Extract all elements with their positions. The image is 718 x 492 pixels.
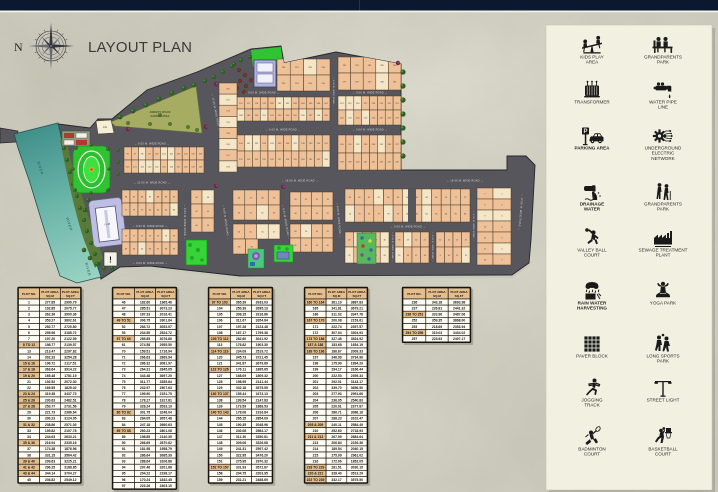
svg-text:3053.97: 3053.97 — [160, 325, 172, 329]
svg-text:288.23: 288.23 — [331, 417, 341, 421]
svg-text:363.64: 363.64 — [45, 368, 55, 372]
svg-text:236.82: 236.82 — [45, 478, 55, 482]
svg-text:30: 30 — [27, 417, 31, 421]
svg-text:3: 3 — [28, 313, 30, 317]
svg-text:174.38: 174.38 — [45, 447, 55, 451]
svg-text:3041.92: 3041.92 — [256, 337, 268, 341]
svg-text:2507.63: 2507.63 — [160, 386, 172, 390]
svg-text:128: 128 — [217, 380, 223, 384]
svg-text:220.91: 220.91 — [331, 404, 341, 408]
svg-text:307.04: 307.04 — [331, 331, 341, 335]
svg-text:2139.57: 2139.57 — [64, 343, 76, 347]
svg-text:P: P — [583, 129, 587, 135]
svg-text:176.82: 176.82 — [236, 343, 246, 347]
svg-text:2203.95: 2203.95 — [256, 472, 268, 476]
svg-text:47: 47 — [122, 306, 126, 310]
svg-text:1809.32: 1809.32 — [256, 374, 268, 378]
svg-text:178.17: 178.17 — [140, 398, 150, 402]
svg-text:3476.20: 3476.20 — [256, 453, 268, 457]
svg-text:3316.86: 3316.86 — [256, 313, 268, 317]
svg-text:1876.96: 1876.96 — [64, 447, 76, 451]
svg-text:COURT: COURT — [584, 253, 600, 258]
svg-text:197.28: 197.28 — [236, 325, 246, 329]
svg-text:222.53: 222.53 — [331, 374, 341, 378]
svg-text:160 TO 164: 160 TO 164 — [307, 300, 325, 304]
svg-text:178.08: 178.08 — [236, 411, 246, 415]
svg-text:2718.93: 2718.93 — [351, 429, 363, 433]
svg-text:← 9.00 M. WIDE ROAD →: ← 9.00 M. WIDE ROAD → — [390, 225, 425, 229]
svg-text:2720.80: 2720.80 — [64, 325, 76, 329]
svg-text:285.51: 285.51 — [140, 306, 150, 310]
svg-text:71: 71 — [122, 355, 126, 359]
svg-text:76: 76 — [122, 386, 126, 390]
svg-text:2731.56: 2731.56 — [64, 404, 76, 408]
svg-text:266.63: 266.63 — [140, 355, 150, 359]
svg-text:114 TO 119: 114 TO 119 — [211, 349, 229, 353]
svg-text:1916.84: 1916.84 — [256, 411, 268, 415]
svg-text:2107.78: 2107.78 — [64, 429, 76, 433]
svg-text:151: 151 — [217, 459, 223, 463]
svg-text:COURT: COURT — [655, 452, 671, 457]
svg-text:← 18.00 M. WIDE ROAD →: ← 18.00 M. WIDE ROAD → — [447, 179, 484, 183]
svg-text:3693.98: 3693.98 — [453, 300, 465, 304]
svg-text:260.23: 260.23 — [140, 429, 150, 433]
svg-text:YOGA PARK: YOGA PARK — [650, 301, 677, 306]
svg-text:AREA: AREA — [586, 60, 599, 65]
svg-text:3434.02: 3434.02 — [453, 331, 465, 335]
svg-text:165: 165 — [313, 306, 319, 310]
svg-text:294.17: 294.17 — [331, 368, 341, 372]
svg-text:165.48: 165.48 — [45, 374, 55, 378]
svg-text:150: 150 — [217, 453, 223, 457]
svg-text:223.26: 223.26 — [140, 484, 150, 488]
svg-text:2633.21: 2633.21 — [64, 435, 76, 439]
svg-text:3254.28: 3254.28 — [64, 355, 76, 359]
svg-text:PLOT NO.: PLOT NO. — [407, 292, 421, 296]
svg-text:343.18: 343.18 — [432, 300, 442, 304]
svg-text:147: 147 — [217, 435, 223, 439]
svg-text:25 & 26: 25 & 26 — [23, 398, 35, 402]
svg-text:199: 199 — [313, 368, 319, 372]
svg-text:121: 121 — [217, 362, 223, 366]
svg-text:2075.77: 2075.77 — [64, 306, 76, 310]
svg-text:2854.09: 2854.09 — [256, 417, 268, 421]
svg-text:91: 91 — [122, 447, 126, 451]
svg-text:104: 104 — [217, 306, 223, 310]
svg-text:199.54: 199.54 — [236, 398, 246, 402]
svg-text:175.99: 175.99 — [331, 362, 341, 366]
svg-text:2961.02: 2961.02 — [351, 453, 363, 457]
svg-text:3030.15: 3030.15 — [351, 466, 363, 470]
svg-text:1965.46: 1965.46 — [160, 300, 172, 304]
svg-text:153.68: 153.68 — [331, 343, 341, 347]
svg-text:295.96: 295.96 — [45, 331, 55, 335]
svg-text:3900.36: 3900.36 — [64, 313, 76, 317]
svg-text:2597.42: 2597.42 — [256, 447, 268, 451]
svg-text:3225.21: 3225.21 — [64, 459, 76, 463]
svg-text:1799.38: 1799.38 — [256, 331, 268, 335]
svg-text:19 & 20: 19 & 20 — [23, 374, 35, 378]
svg-text:332.18: 332.18 — [236, 386, 246, 390]
svg-text:WATER: WATER — [584, 207, 601, 212]
svg-text:95: 95 — [122, 472, 126, 476]
svg-text:← 6.00 M. WIDE ROAD →: ← 6.00 M. WIDE ROAD → — [391, 232, 394, 262]
svg-text:281.51: 281.51 — [331, 466, 341, 470]
svg-text:97 TO 103: 97 TO 103 — [212, 300, 228, 304]
svg-text:238.86: 238.86 — [45, 423, 55, 427]
svg-text:198: 198 — [313, 362, 319, 366]
svg-text:GARDEN AREA: GARDEN AREA — [150, 114, 169, 118]
svg-text:2072.30: 2072.30 — [64, 380, 76, 384]
svg-text:290.23: 290.23 — [45, 417, 55, 421]
svg-text:29: 29 — [27, 411, 31, 415]
svg-text:3721.45: 3721.45 — [256, 355, 268, 359]
svg-text:359.35: 359.35 — [432, 319, 442, 323]
svg-text:93: 93 — [122, 459, 126, 463]
svg-text:2660.63: 2660.63 — [160, 423, 172, 427]
svg-text:1958.79: 1958.79 — [160, 447, 172, 451]
svg-text:106: 106 — [217, 319, 223, 323]
svg-text:187.33: 187.33 — [140, 313, 150, 317]
svg-text:38: 38 — [27, 453, 31, 457]
svg-text:253: 253 — [412, 325, 418, 329]
svg-text:2122.59: 2122.59 — [64, 337, 76, 341]
svg-text:2584.49: 2584.49 — [351, 423, 363, 427]
svg-text:2123.48: 2123.48 — [256, 325, 268, 329]
svg-text:2441.32: 2441.32 — [453, 306, 465, 310]
svg-text:2151.75: 2151.75 — [160, 392, 172, 396]
svg-text:LINE: LINE — [658, 105, 668, 110]
svg-text:3106.86: 3106.86 — [160, 459, 172, 463]
svg-text:3524.92: 3524.92 — [351, 337, 363, 341]
svg-text:353.27: 353.27 — [45, 319, 55, 323]
svg-text:250.39: 250.39 — [236, 306, 246, 310]
svg-text:2991.66: 2991.66 — [351, 392, 363, 396]
svg-text:257: 257 — [412, 337, 418, 341]
svg-text:NETWORK: NETWORK — [651, 156, 675, 161]
svg-text:PLANT: PLANT — [656, 253, 671, 258]
svg-text:TRANSFORMER: TRANSFORMER — [574, 100, 610, 105]
svg-text:323.96: 323.96 — [432, 313, 442, 317]
svg-text:← 18.00 M. WIDE ROAD →: ← 18.00 M. WIDE ROAD → — [282, 179, 319, 183]
svg-text:247.18: 247.18 — [140, 423, 150, 427]
svg-text:122 TO 126: 122 TO 126 — [211, 368, 229, 372]
svg-text:254 TO 256: 254 TO 256 — [405, 331, 423, 335]
svg-text:197: 197 — [313, 355, 319, 359]
svg-text:172: 172 — [313, 331, 319, 335]
svg-text:319.38: 319.38 — [45, 392, 55, 396]
svg-text:3564.42: 3564.42 — [64, 453, 76, 457]
svg-text:52: 52 — [122, 325, 126, 329]
svg-text:5: 5 — [28, 325, 30, 329]
svg-text:361.19: 361.19 — [331, 300, 341, 304]
svg-text:145: 145 — [217, 423, 223, 427]
svg-text:← 6.00 M. WIDE ROAD →: ← 6.00 M. WIDE ROAD → — [472, 211, 475, 241]
svg-text:79: 79 — [122, 404, 126, 408]
svg-text:3868.00: 3868.00 — [453, 319, 465, 323]
svg-text:2695.13: 2695.13 — [256, 306, 268, 310]
svg-text:130 TO 137: 130 TO 137 — [211, 392, 229, 396]
svg-text:155.44: 155.44 — [236, 392, 246, 396]
svg-text:186.67: 186.67 — [331, 349, 341, 353]
svg-text:109 TO 112: 109 TO 112 — [211, 337, 229, 341]
svg-text:PLOT NO.: PLOT NO. — [22, 292, 36, 296]
svg-text:94: 94 — [122, 466, 126, 470]
svg-text:90: 90 — [122, 441, 126, 445]
svg-text:← 9.00 M. WIDE ROAD →: ← 9.00 M. WIDE ROAD → — [244, 91, 279, 95]
svg-text:3073.23: 3073.23 — [160, 306, 172, 310]
svg-text:2482.51: 2482.51 — [64, 398, 76, 402]
svg-text:3188.85: 3188.85 — [64, 466, 76, 470]
svg-text:274.58: 274.58 — [140, 343, 150, 347]
svg-text:173 TO 186: 173 TO 186 — [307, 337, 325, 341]
svg-text:200.08: 200.08 — [331, 319, 341, 323]
svg-text:189.54: 189.54 — [331, 447, 341, 451]
svg-text:169.55: 169.55 — [45, 386, 55, 390]
svg-text:← 9.00 M. WIDE ROAD →: ← 9.00 M. WIDE ROAD → — [132, 224, 167, 228]
svg-text:2571.03: 2571.03 — [64, 423, 76, 427]
svg-text:SQ.FT: SQ.FT — [161, 294, 170, 298]
svg-text:3572.87: 3572.87 — [256, 466, 268, 470]
svg-text:SQ.M: SQ.M — [46, 294, 54, 298]
svg-text:189 TO 196: 189 TO 196 — [307, 349, 325, 353]
svg-text:2386.64: 2386.64 — [64, 411, 76, 415]
svg-text:3347.78: 3347.78 — [351, 313, 363, 317]
svg-text:221.73: 221.73 — [45, 411, 55, 415]
svg-text:275.09: 275.09 — [331, 453, 341, 457]
svg-text:190.35: 190.35 — [236, 423, 246, 427]
svg-text:3704.27: 3704.27 — [64, 472, 76, 476]
svg-text:14: 14 — [27, 355, 31, 359]
svg-text:201: 201 — [313, 380, 319, 384]
svg-text:77: 77 — [122, 392, 126, 396]
svg-text:139: 139 — [217, 404, 223, 408]
svg-text:173.59: 173.59 — [236, 404, 246, 408]
svg-text:2488.69: 2488.69 — [256, 478, 268, 482]
svg-text:206.84: 206.84 — [331, 441, 341, 445]
svg-text:PAVER BLOCK: PAVER BLOCK — [576, 354, 609, 359]
svg-text:2117.51: 2117.51 — [64, 362, 76, 366]
svg-text:226.81: 226.81 — [432, 306, 442, 310]
svg-text:3575.55: 3575.55 — [256, 386, 268, 390]
svg-text:2141.44: 2141.44 — [256, 380, 268, 384]
svg-text:45: 45 — [27, 478, 31, 482]
svg-text:332.17: 332.17 — [331, 478, 341, 482]
svg-text:2: 2 — [28, 306, 30, 310]
svg-text:← 6.00 M. WIDE ROAD →: ← 6.00 M. WIDE ROAD → — [183, 204, 187, 239]
svg-text:2801.08: 2801.08 — [160, 429, 172, 433]
svg-text:244.63: 244.63 — [45, 435, 55, 439]
svg-text:PARK: PARK — [657, 359, 670, 364]
svg-text:6: 6 — [28, 331, 30, 335]
svg-text:299.63: 299.63 — [45, 459, 55, 463]
svg-text:3354.84: 3354.84 — [256, 319, 268, 323]
svg-text:31 & 32: 31 & 32 — [23, 423, 35, 427]
svg-text:159.51: 159.51 — [140, 349, 150, 353]
svg-text:3914.22: 3914.22 — [64, 368, 76, 372]
svg-text:208 & 209: 208 & 209 — [308, 423, 324, 427]
svg-text:SQ.FT: SQ.FT — [352, 294, 361, 298]
svg-text:284.05: 284.05 — [140, 417, 150, 421]
svg-text:306.75: 306.75 — [140, 319, 150, 323]
svg-text:181.98: 181.98 — [140, 447, 150, 451]
svg-text:204: 204 — [313, 398, 319, 402]
svg-text:1716.94: 1716.94 — [160, 349, 172, 353]
svg-text:218 TO 229: 218 TO 229 — [307, 466, 325, 470]
svg-text:23 & 24: 23 & 24 — [23, 392, 35, 396]
svg-text:2395.34: 2395.34 — [351, 374, 363, 378]
svg-text:277.93: 277.93 — [331, 392, 341, 396]
svg-text:2870.62: 2870.62 — [160, 441, 172, 445]
svg-text:1917.81: 1917.81 — [160, 398, 172, 402]
svg-text:3102.47: 3102.47 — [351, 417, 363, 421]
svg-text:101: 101 — [103, 126, 108, 129]
svg-text:3679.89: 3679.89 — [256, 362, 268, 366]
svg-text:3185.72: 3185.72 — [64, 331, 76, 335]
svg-text:3887.83: 3887.83 — [351, 300, 363, 304]
svg-text:3513.29: 3513.29 — [351, 472, 363, 476]
svg-text:198.95: 198.95 — [236, 380, 246, 384]
svg-text:1: 1 — [28, 300, 30, 304]
svg-text:1825.02: 1825.02 — [64, 386, 76, 390]
svg-text:2147.83: 2147.83 — [256, 398, 268, 402]
svg-text:SQ.FT: SQ.FT — [455, 294, 464, 298]
svg-text:311.67: 311.67 — [236, 319, 246, 323]
svg-text:3143.17: 3143.17 — [351, 380, 363, 384]
svg-text:200: 200 — [313, 374, 319, 378]
svg-text:1895.65: 1895.65 — [256, 368, 268, 372]
svg-text:70: 70 — [122, 349, 126, 353]
svg-text:43 & 44: 43 & 44 — [23, 472, 35, 476]
svg-text:PARK: PARK — [657, 207, 670, 212]
svg-text:286.64: 286.64 — [140, 453, 150, 457]
svg-text:17 & 18: 17 & 18 — [23, 368, 35, 372]
svg-text:182.60: 182.60 — [140, 300, 150, 304]
svg-text:339.70: 339.70 — [331, 386, 341, 390]
svg-text:105: 105 — [217, 313, 223, 317]
svg-text:171: 171 — [313, 325, 319, 329]
svg-text:168.09: 168.09 — [236, 374, 246, 378]
svg-text:41 & 42: 41 & 42 — [23, 466, 35, 470]
svg-text:222 TO 235: 222 TO 235 — [307, 478, 325, 482]
svg-text:214: 214 — [313, 447, 319, 451]
svg-text:← 6.00 M. WIDE ROAD →: ← 6.00 M. WIDE ROAD → — [332, 77, 335, 107]
svg-text:192.52: 192.52 — [45, 380, 55, 384]
svg-text:2140.35: 2140.35 — [160, 435, 172, 439]
svg-text:3085.39: 3085.39 — [160, 453, 172, 457]
svg-text:← 9.00 M. WIDE ROAD →: ← 9.00 M. WIDE ROAD → — [352, 91, 387, 95]
svg-text:PARK: PARK — [657, 60, 670, 65]
svg-text:220 & 221: 220 & 221 — [308, 472, 324, 476]
svg-text:234.55: 234.55 — [140, 331, 150, 335]
svg-text:309.06: 309.06 — [236, 441, 246, 445]
svg-text:78: 78 — [122, 398, 126, 402]
svg-text:2198.17: 2198.17 — [160, 472, 172, 476]
svg-text:215: 215 — [313, 453, 319, 457]
svg-text:2353.94: 2353.94 — [453, 325, 465, 329]
svg-text:PARKING AREA: PARKING AREA — [575, 146, 611, 151]
svg-text:75: 75 — [122, 380, 126, 384]
svg-text:144: 144 — [217, 417, 223, 421]
svg-text:167 TO 170: 167 TO 170 — [307, 319, 325, 323]
svg-text:2040.15: 2040.15 — [351, 447, 363, 451]
svg-text:206: 206 — [313, 411, 319, 415]
svg-text:341.81: 341.81 — [331, 306, 341, 310]
svg-text:286.71: 286.71 — [331, 411, 341, 415]
svg-text:266.69: 266.69 — [140, 441, 150, 445]
svg-text:232.97: 232.97 — [140, 386, 150, 390]
svg-text:322.95: 322.95 — [236, 453, 246, 457]
svg-text:2403.10: 2403.10 — [160, 484, 172, 488]
svg-text:213: 213 — [313, 441, 319, 445]
svg-text:238 TO 251: 238 TO 251 — [405, 313, 423, 317]
svg-text:2397.57: 2397.57 — [351, 325, 363, 329]
svg-text:73: 73 — [122, 368, 126, 372]
svg-text:1673.13: 1673.13 — [256, 392, 268, 396]
svg-text:222.74: 222.74 — [331, 325, 341, 329]
svg-text:72: 72 — [122, 362, 126, 366]
svg-text:253.77: 253.77 — [45, 404, 55, 408]
svg-text:159: 159 — [217, 478, 223, 482]
svg-text:198.77: 198.77 — [45, 343, 55, 347]
svg-text:237: 237 — [412, 306, 418, 310]
svg-text:15 & 16: 15 & 16 — [23, 362, 35, 366]
svg-text:2407.17: 2407.17 — [453, 337, 465, 341]
svg-text:49 TO 51: 49 TO 51 — [117, 319, 131, 323]
svg-text:297.46: 297.46 — [140, 466, 150, 470]
svg-text:1868.53: 1868.53 — [256, 404, 268, 408]
svg-text:COURT: COURT — [584, 452, 600, 457]
svg-text:120: 120 — [217, 355, 223, 359]
svg-text:252.77: 252.77 — [45, 325, 55, 329]
svg-text:2549.12: 2549.12 — [64, 478, 76, 482]
svg-text:89: 89 — [122, 435, 126, 439]
svg-text:146: 146 — [217, 429, 223, 433]
svg-text:285.85: 285.85 — [140, 337, 150, 341]
svg-text:187 & 188: 187 & 188 — [308, 343, 324, 347]
svg-text:1832.45: 1832.45 — [160, 478, 172, 482]
svg-text:3301.84: 3301.84 — [160, 319, 172, 323]
svg-text:2845.05: 2845.05 — [160, 368, 172, 372]
svg-text:344.14: 344.14 — [45, 472, 55, 476]
svg-text:3802.61: 3802.61 — [64, 319, 76, 323]
svg-text:← 6.00 M. WIDE ROAD →: ← 6.00 M. WIDE ROAD → — [134, 142, 169, 146]
svg-text:PLOT NO.: PLOT NO. — [308, 292, 322, 296]
svg-text:SQ.M: SQ.M — [433, 294, 441, 298]
svg-text:218.69: 218.69 — [432, 325, 442, 329]
svg-text:2884.64: 2884.64 — [351, 435, 363, 439]
svg-text:199.90: 199.90 — [140, 392, 150, 396]
svg-text:319.03: 319.03 — [432, 331, 442, 335]
svg-text:53: 53 — [122, 331, 126, 335]
svg-text:236: 236 — [412, 300, 418, 304]
svg-text:3697.20: 3697.20 — [160, 374, 172, 378]
svg-text:13: 13 — [27, 349, 31, 353]
svg-text:3679.21: 3679.21 — [351, 306, 363, 310]
svg-text:286.32: 286.32 — [140, 362, 150, 366]
svg-text:3437.73: 3437.73 — [64, 392, 76, 396]
svg-text:236.05: 236.05 — [331, 398, 341, 402]
svg-text:1903.30: 1903.30 — [256, 343, 268, 347]
svg-text:176.11: 176.11 — [236, 368, 246, 372]
svg-text:SQ.FT: SQ.FT — [66, 294, 75, 298]
svg-text:211 & 212: 211 & 212 — [308, 435, 324, 439]
svg-text:326.40: 326.40 — [331, 472, 341, 476]
svg-text:1852.05: 1852.05 — [351, 459, 363, 463]
svg-text:3575.50: 3575.50 — [351, 478, 363, 482]
svg-text:N: N — [14, 40, 23, 54]
svg-text:HARVESTING: HARVESTING — [577, 306, 607, 311]
